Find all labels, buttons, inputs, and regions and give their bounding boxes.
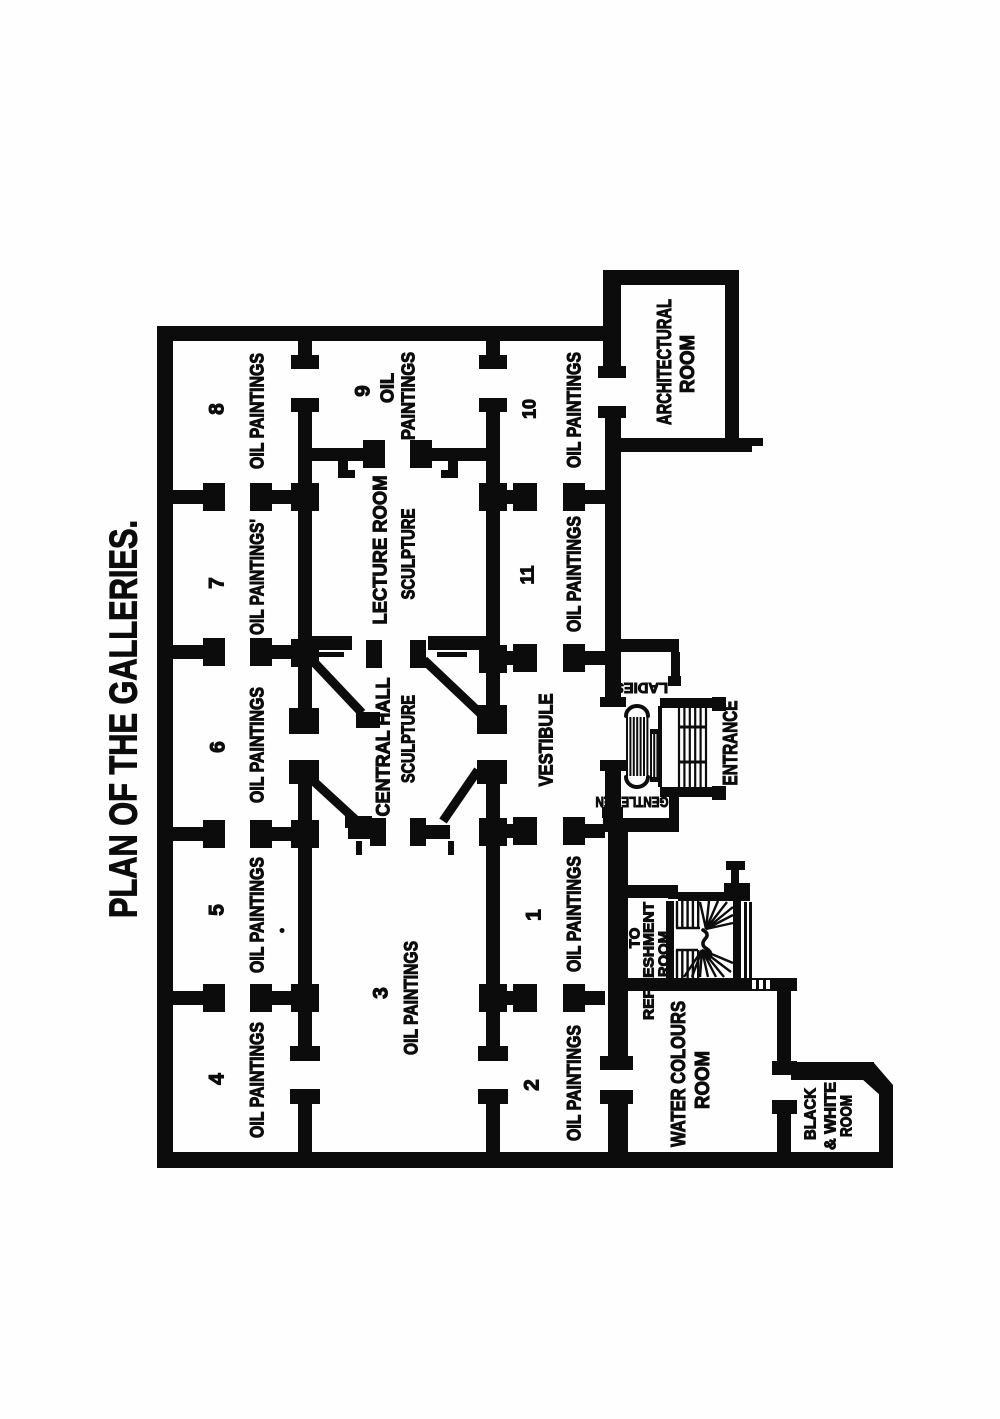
svg-text:OIL PAINTINGS: OIL PAINTINGS — [248, 353, 269, 469]
svg-text:ENTRANCE: ENTRANCE — [720, 701, 742, 786]
svg-text:11: 11 — [517, 565, 537, 584]
svg-text:10: 10 — [519, 399, 539, 419]
svg-text:ROOM: ROOM — [655, 931, 672, 977]
svg-text:PAINTINGS: PAINTINGS — [398, 352, 418, 440]
svg-text:ROOM: ROOM — [677, 335, 699, 393]
svg-text:VESTIBULE: VESTIBULE — [537, 694, 558, 787]
svg-text:9: 9 — [351, 385, 374, 397]
svg-text:4: 4 — [205, 1073, 228, 1085]
svg-text:OIL: OIL — [377, 373, 397, 403]
svg-text:OIL PAINTINGS: OIL PAINTINGS — [248, 687, 269, 803]
svg-text:BLACK: BLACK — [803, 1088, 820, 1140]
svg-text:OIL PAINTINGS': OIL PAINTINGS' — [248, 519, 269, 635]
svg-text:ROOM: ROOM — [692, 1051, 714, 1109]
svg-text:OIL PAINTINGS: OIL PAINTINGS — [248, 857, 269, 973]
svg-text:ROOM: ROOM — [839, 1095, 856, 1137]
svg-text:LECTURE ROOM: LECTURE ROOM — [371, 476, 392, 625]
svg-text:SCULPTURE: SCULPTURE — [398, 695, 418, 783]
svg-text:1: 1 — [522, 909, 545, 921]
svg-text:OIL PAINTINGS: OIL PAINTINGS — [565, 516, 586, 632]
svg-text:OIL PAINTINGS: OIL PAINTINGS — [565, 352, 586, 468]
svg-text:OIL PAINTINGS: OIL PAINTINGS — [248, 1022, 269, 1138]
svg-text:OIL PAINTINGS: OIL PAINTINGS — [565, 1025, 586, 1141]
svg-text:SCULPTURE: SCULPTURE — [398, 509, 418, 600]
svg-text:CENTRAL HALL: CENTRAL HALL — [374, 677, 395, 816]
svg-text:LADIES: LADIES — [614, 679, 668, 696]
svg-text:WATER COLOURS: WATER COLOURS — [668, 1001, 690, 1147]
svg-text:7: 7 — [205, 577, 228, 589]
svg-text:& WHITE: & WHITE — [823, 1082, 840, 1150]
svg-text:GENTLEMEN: GENTLEMEN — [596, 793, 669, 810]
svg-text:2: 2 — [520, 1079, 543, 1091]
svg-text:OIL PAINTINGS: OIL PAINTINGS — [402, 941, 423, 1055]
svg-text:PLAN OF THE GALLERIES.: PLAN OF THE GALLERIES. — [103, 520, 146, 918]
svg-text:6: 6 — [206, 741, 229, 753]
svg-text:OIL PAINTINGS: OIL PAINTINGS — [565, 856, 586, 972]
svg-text:ARCHITECTURAL: ARCHITECTURAL — [654, 299, 676, 425]
svg-text:3: 3 — [369, 987, 392, 999]
svg-text:8: 8 — [205, 403, 228, 415]
svg-text:5: 5 — [205, 904, 228, 916]
